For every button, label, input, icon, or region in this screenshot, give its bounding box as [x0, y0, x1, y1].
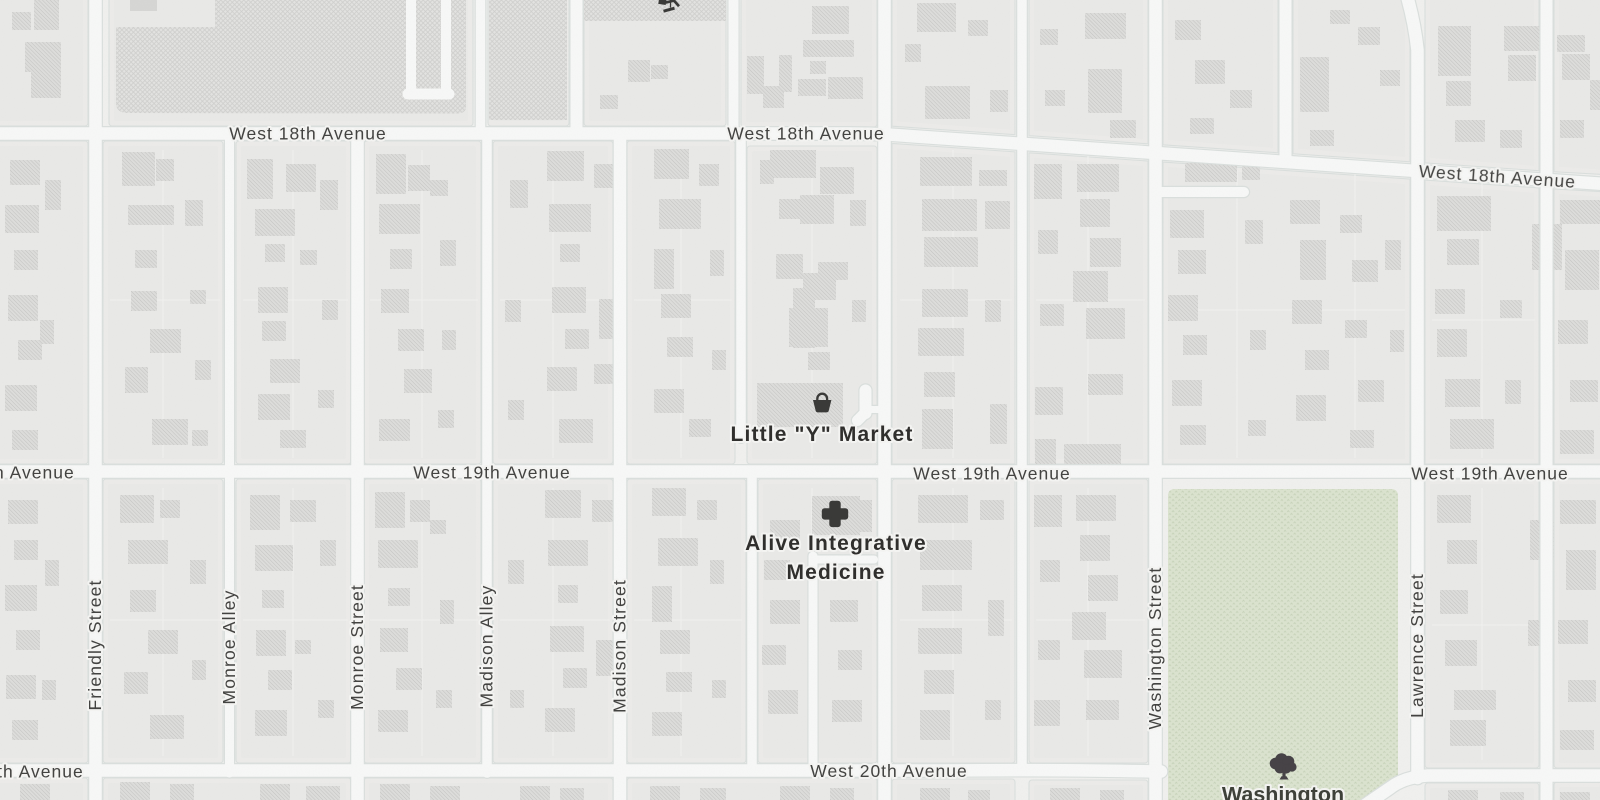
svg-text:West 19th Avenue: West 19th Avenue: [413, 463, 570, 483]
svg-text:West 19th Avenue: West 19th Avenue: [1411, 464, 1568, 484]
svg-text:Madison Alley: Madison Alley: [477, 585, 497, 708]
svg-text:Little "Y" Market: Little "Y" Market: [731, 423, 914, 446]
svg-text:Friendly Street: Friendly Street: [85, 579, 105, 710]
svg-text:West 19th Avenue: West 19th Avenue: [913, 464, 1070, 484]
svg-text:West 20th Avenue: West 20th Avenue: [810, 761, 967, 781]
svg-text:Monroe Alley: Monroe Alley: [219, 590, 239, 705]
svg-text:West 19th Avenue: West 19th Avenue: [0, 463, 75, 483]
svg-text:Alive Integrative: Alive Integrative: [745, 532, 927, 555]
svg-text:West 18th Avenue: West 18th Avenue: [229, 124, 386, 144]
svg-text:West 18th Avenue: West 18th Avenue: [727, 124, 884, 144]
svg-text:Washington Street: Washington Street: [1145, 567, 1165, 730]
svg-text:Madison Street: Madison Street: [610, 579, 630, 713]
svg-text:Lawrence Street: Lawrence Street: [1407, 573, 1427, 718]
svg-text:Medicine: Medicine: [786, 561, 885, 584]
svg-text:West 20th Avenue: West 20th Avenue: [0, 762, 84, 782]
svg-text:Monroe Street: Monroe Street: [347, 584, 367, 710]
svg-text:Washington: Washington: [1222, 783, 1344, 800]
